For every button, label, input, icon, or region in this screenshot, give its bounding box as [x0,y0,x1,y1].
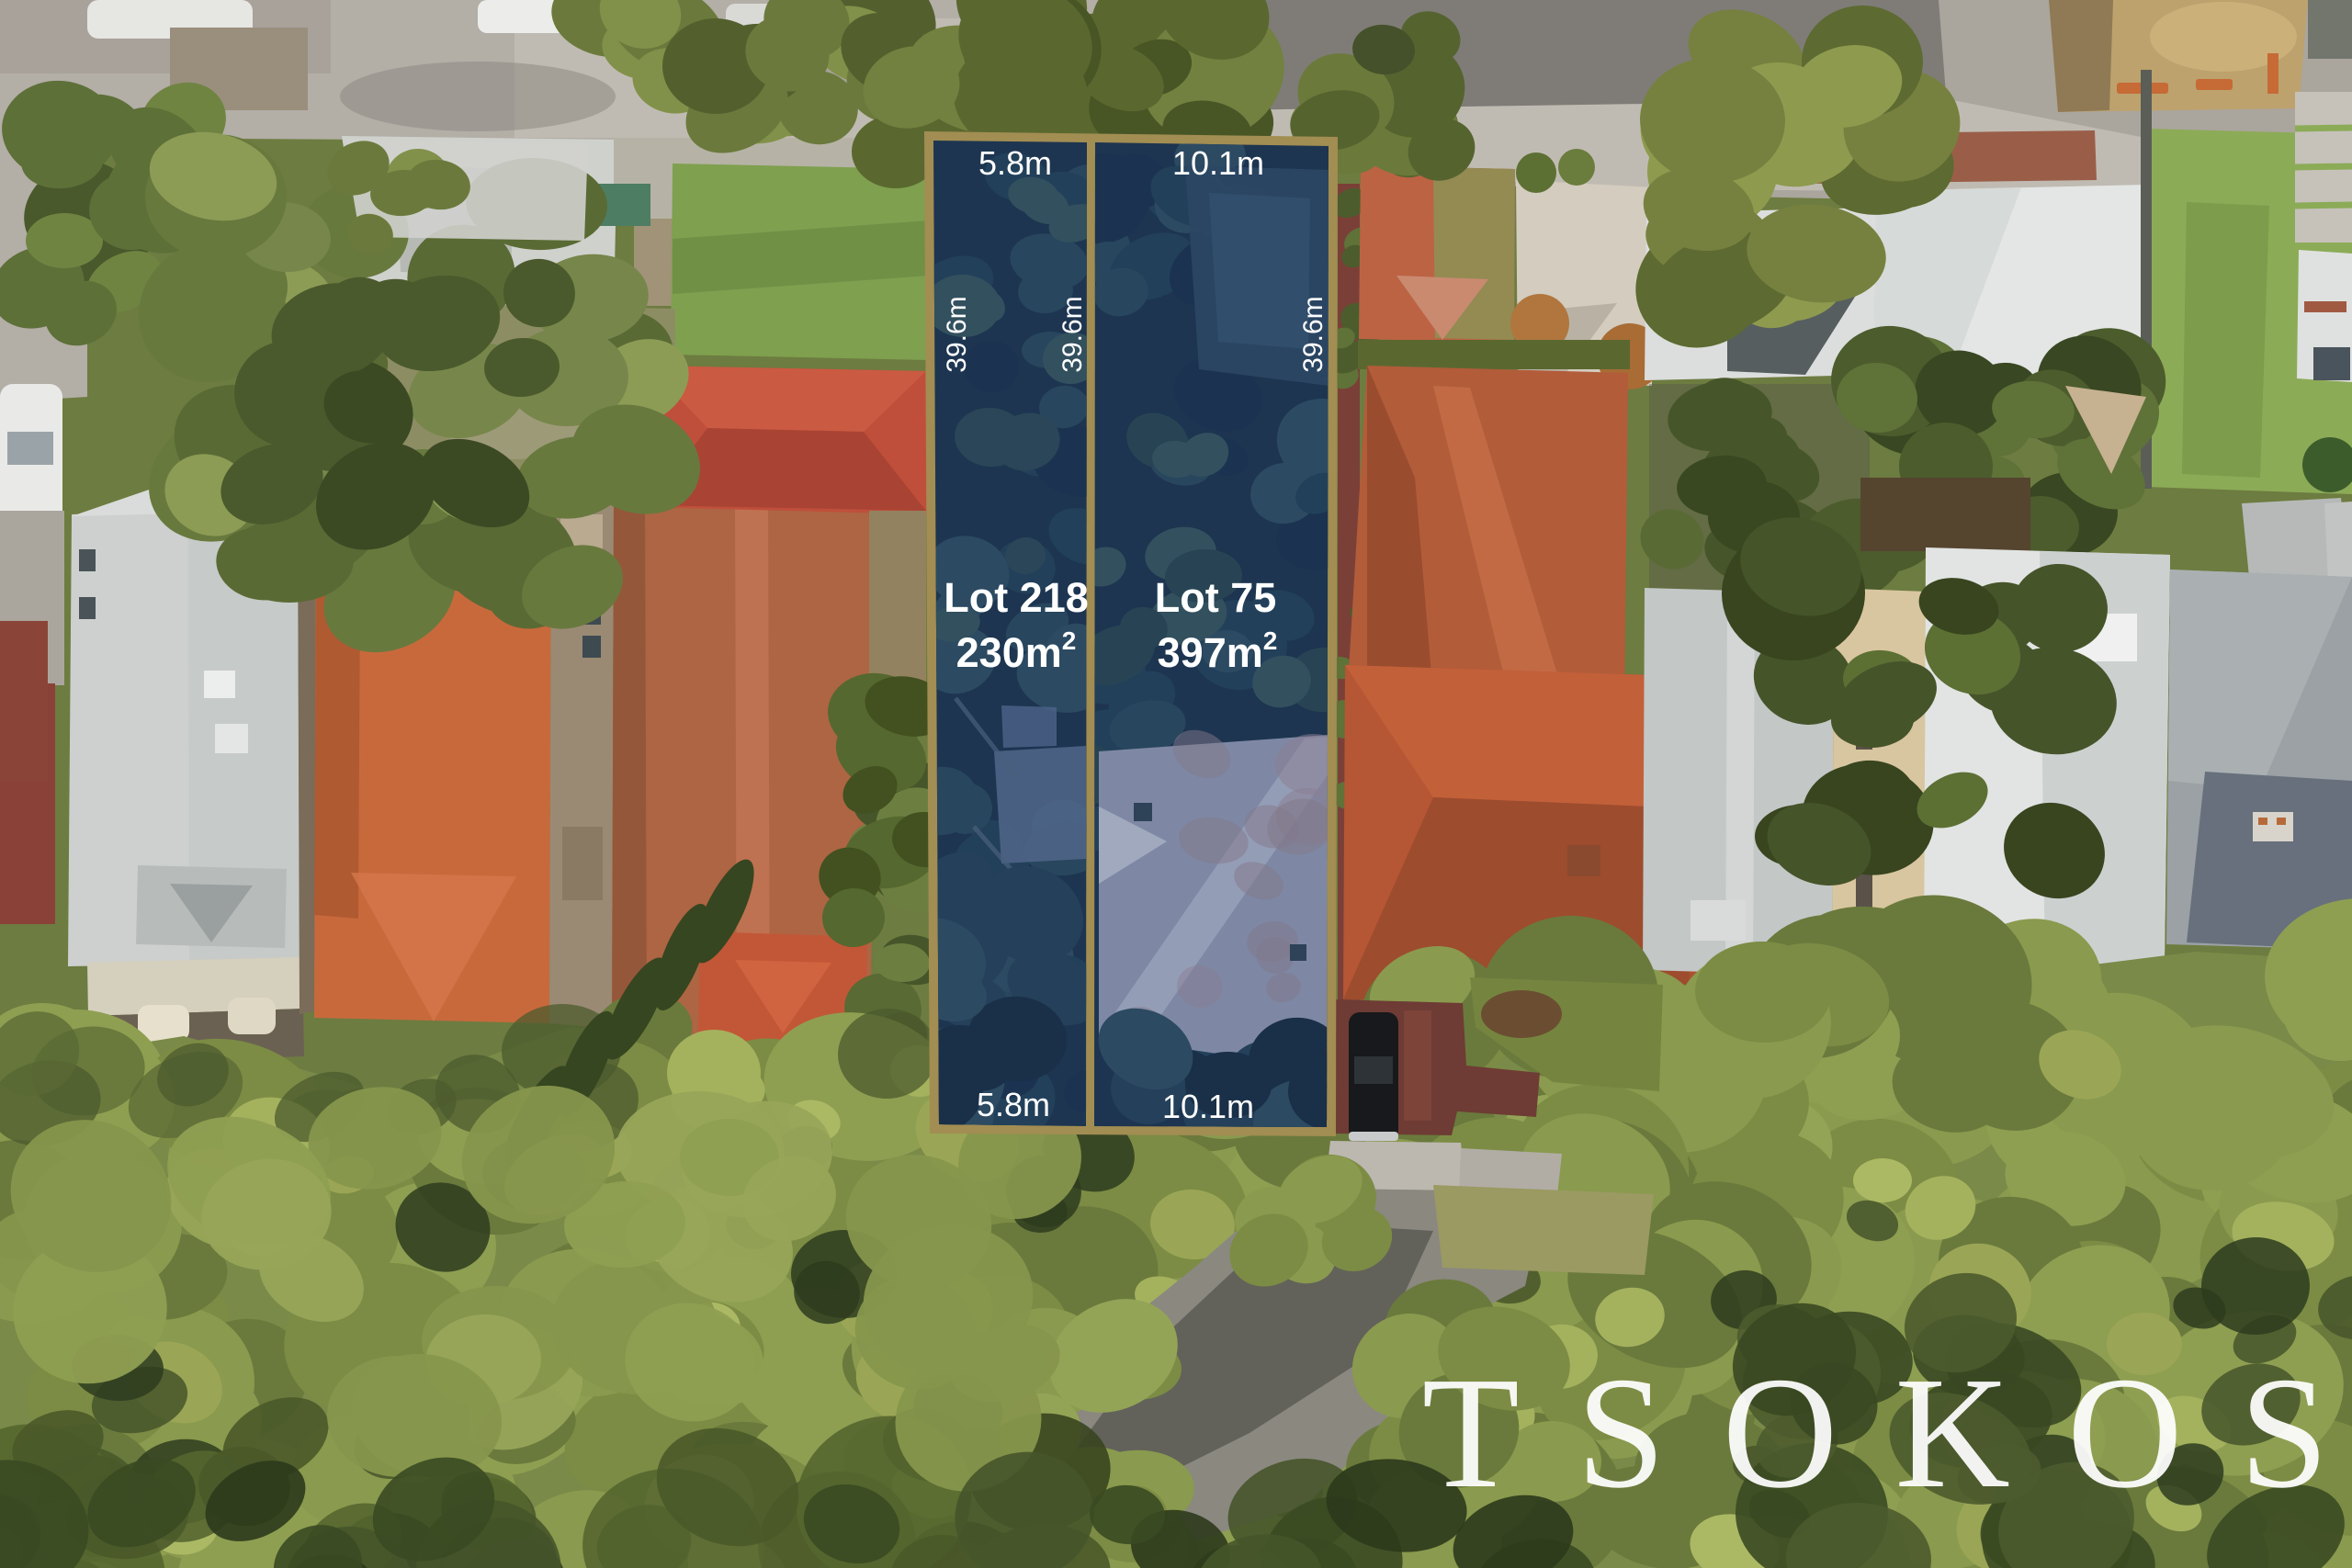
svg-text:5.8m: 5.8m [978,144,1052,182]
svg-text:Lot 75: Lot 75 [1155,574,1277,621]
svg-text:39.6m: 39.6m [1057,296,1088,372]
svg-text:39.6m: 39.6m [1298,296,1329,372]
svg-text:5.8m: 5.8m [977,1086,1050,1123]
svg-text:230m2: 230m2 [956,626,1077,676]
svg-text:39.6m: 39.6m [942,296,972,372]
svg-text:10.1m: 10.1m [1162,1088,1254,1125]
svg-text:397m2: 397m2 [1158,626,1278,676]
svg-text:Lot 218: Lot 218 [944,574,1089,621]
svg-text:TSOKOS: TSOKOS [1422,1344,2352,1521]
svg-text:10.1m: 10.1m [1172,144,1264,182]
